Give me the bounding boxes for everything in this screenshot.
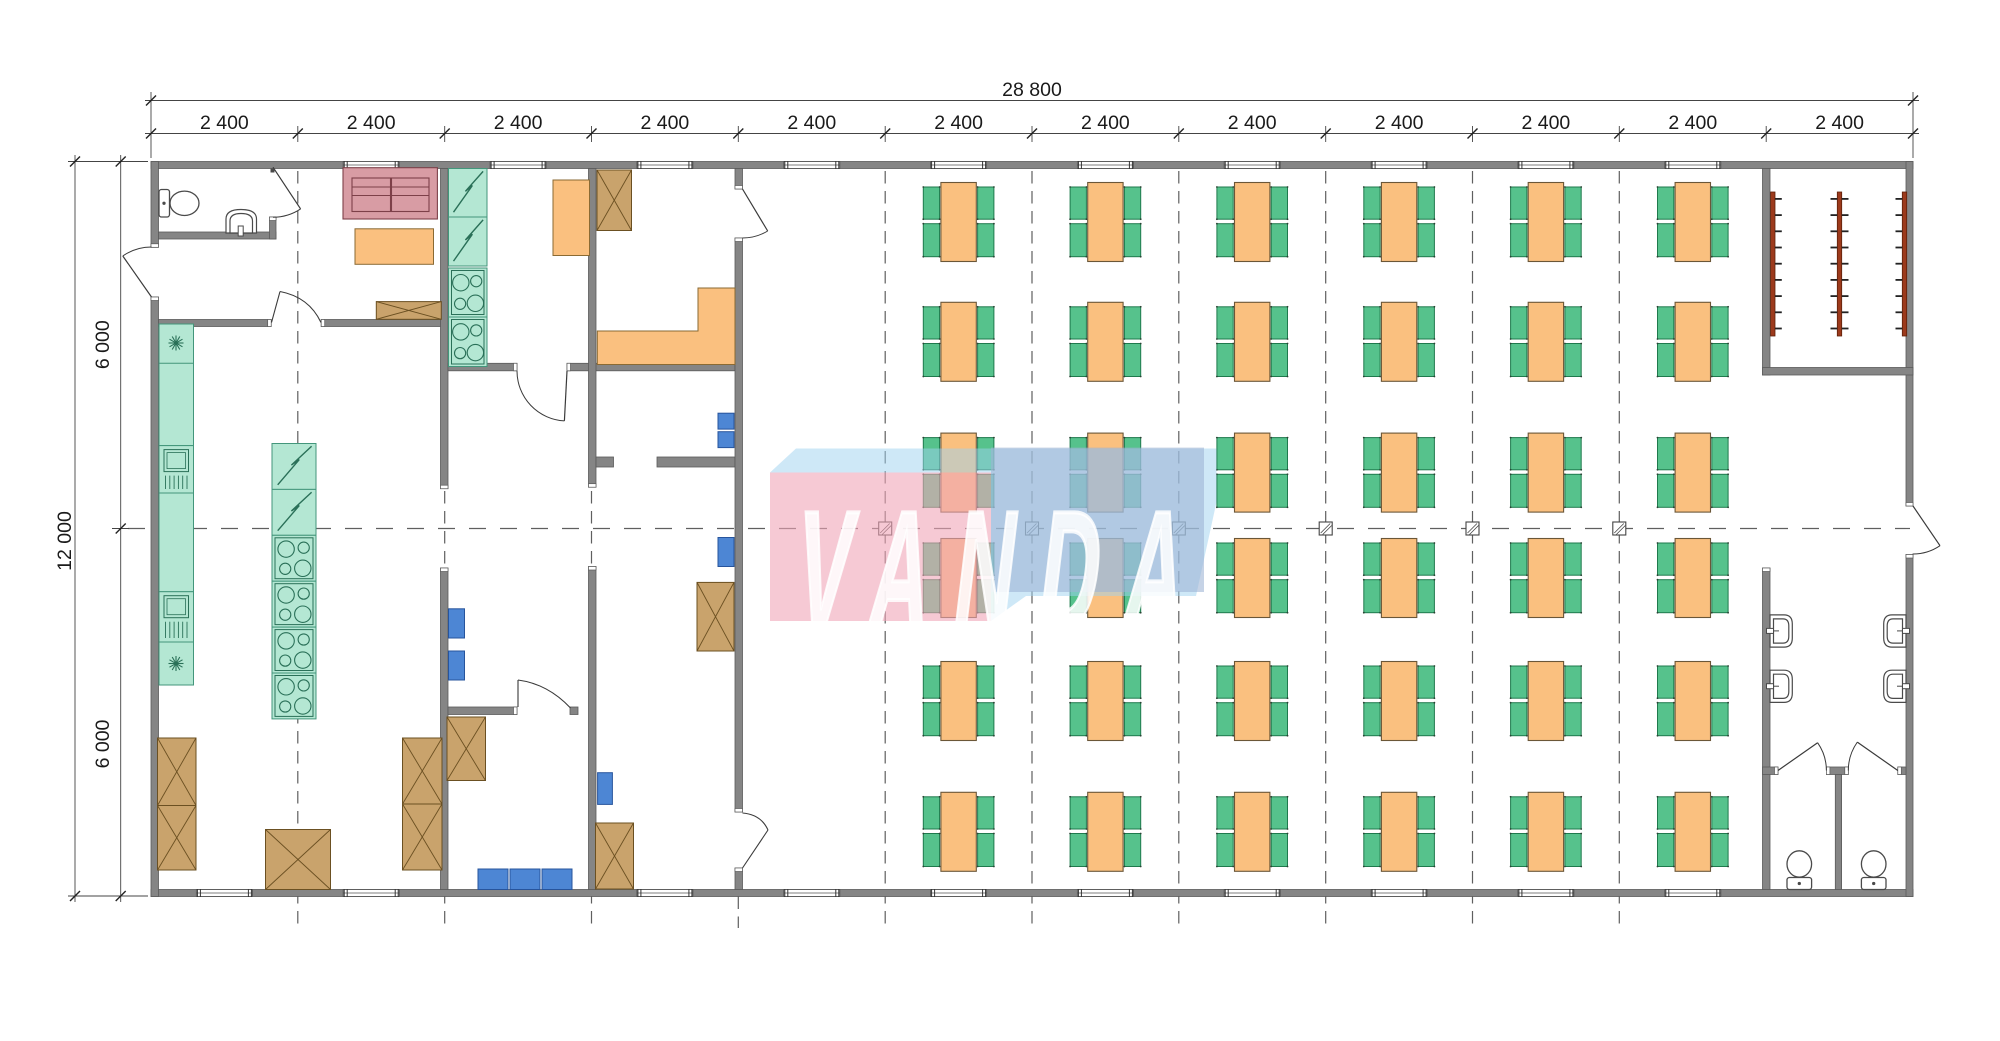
svg-text:6 000: 6 000 xyxy=(92,320,114,369)
svg-text:2 400: 2 400 xyxy=(347,112,396,134)
svg-text:VANDA: VANDA xyxy=(787,475,1223,666)
svg-text:28 800: 28 800 xyxy=(1002,79,1062,101)
svg-text:2 400: 2 400 xyxy=(1815,112,1864,134)
svg-text:2 400: 2 400 xyxy=(1228,112,1277,134)
svg-text:6 000: 6 000 xyxy=(92,719,114,768)
svg-text:2 400: 2 400 xyxy=(1668,112,1717,134)
svg-text:2 400: 2 400 xyxy=(1375,112,1424,134)
svg-text:2 400: 2 400 xyxy=(200,112,249,134)
svg-text:2 400: 2 400 xyxy=(640,112,689,134)
svg-text:2 400: 2 400 xyxy=(494,112,543,134)
svg-text:2 400: 2 400 xyxy=(787,112,836,134)
svg-text:2 400: 2 400 xyxy=(934,112,983,134)
svg-text:12 000: 12 000 xyxy=(54,511,76,571)
svg-text:2 400: 2 400 xyxy=(1081,112,1130,134)
svg-text:2 400: 2 400 xyxy=(1521,112,1570,134)
